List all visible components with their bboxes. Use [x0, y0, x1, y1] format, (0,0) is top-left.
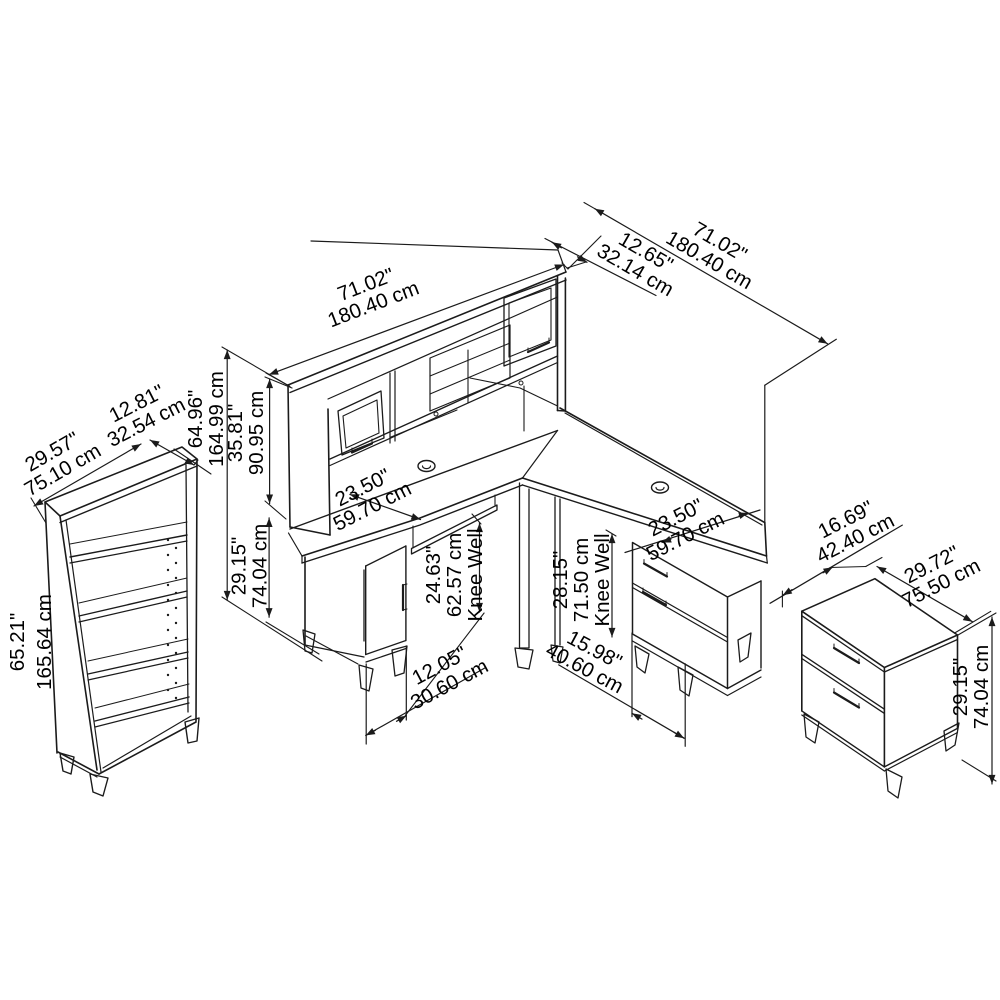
svg-text:74.04 cm: 74.04 cm [970, 645, 993, 729]
svg-text:65.21": 65.21" [6, 613, 29, 672]
svg-text:28.15": 28.15" [549, 551, 572, 610]
svg-text:74.04 cm: 74.04 cm [249, 524, 272, 608]
svg-text:Knee Well: Knee Well [464, 528, 487, 621]
svg-text:24.63": 24.63" [422, 546, 445, 605]
svg-text:29.15": 29.15" [228, 537, 251, 596]
svg-text:62.57 cm: 62.57 cm [443, 533, 466, 617]
svg-text:90.95 cm: 90.95 cm [245, 391, 268, 475]
svg-text:165.64 cm: 165.64 cm [33, 594, 56, 690]
svg-text:29.15": 29.15" [949, 658, 972, 717]
svg-text:64.96": 64.96" [184, 390, 207, 449]
svg-text:35.81": 35.81" [224, 404, 247, 463]
svg-text:Knee Well: Knee Well [591, 533, 614, 626]
svg-text:71.50 cm: 71.50 cm [570, 538, 593, 622]
